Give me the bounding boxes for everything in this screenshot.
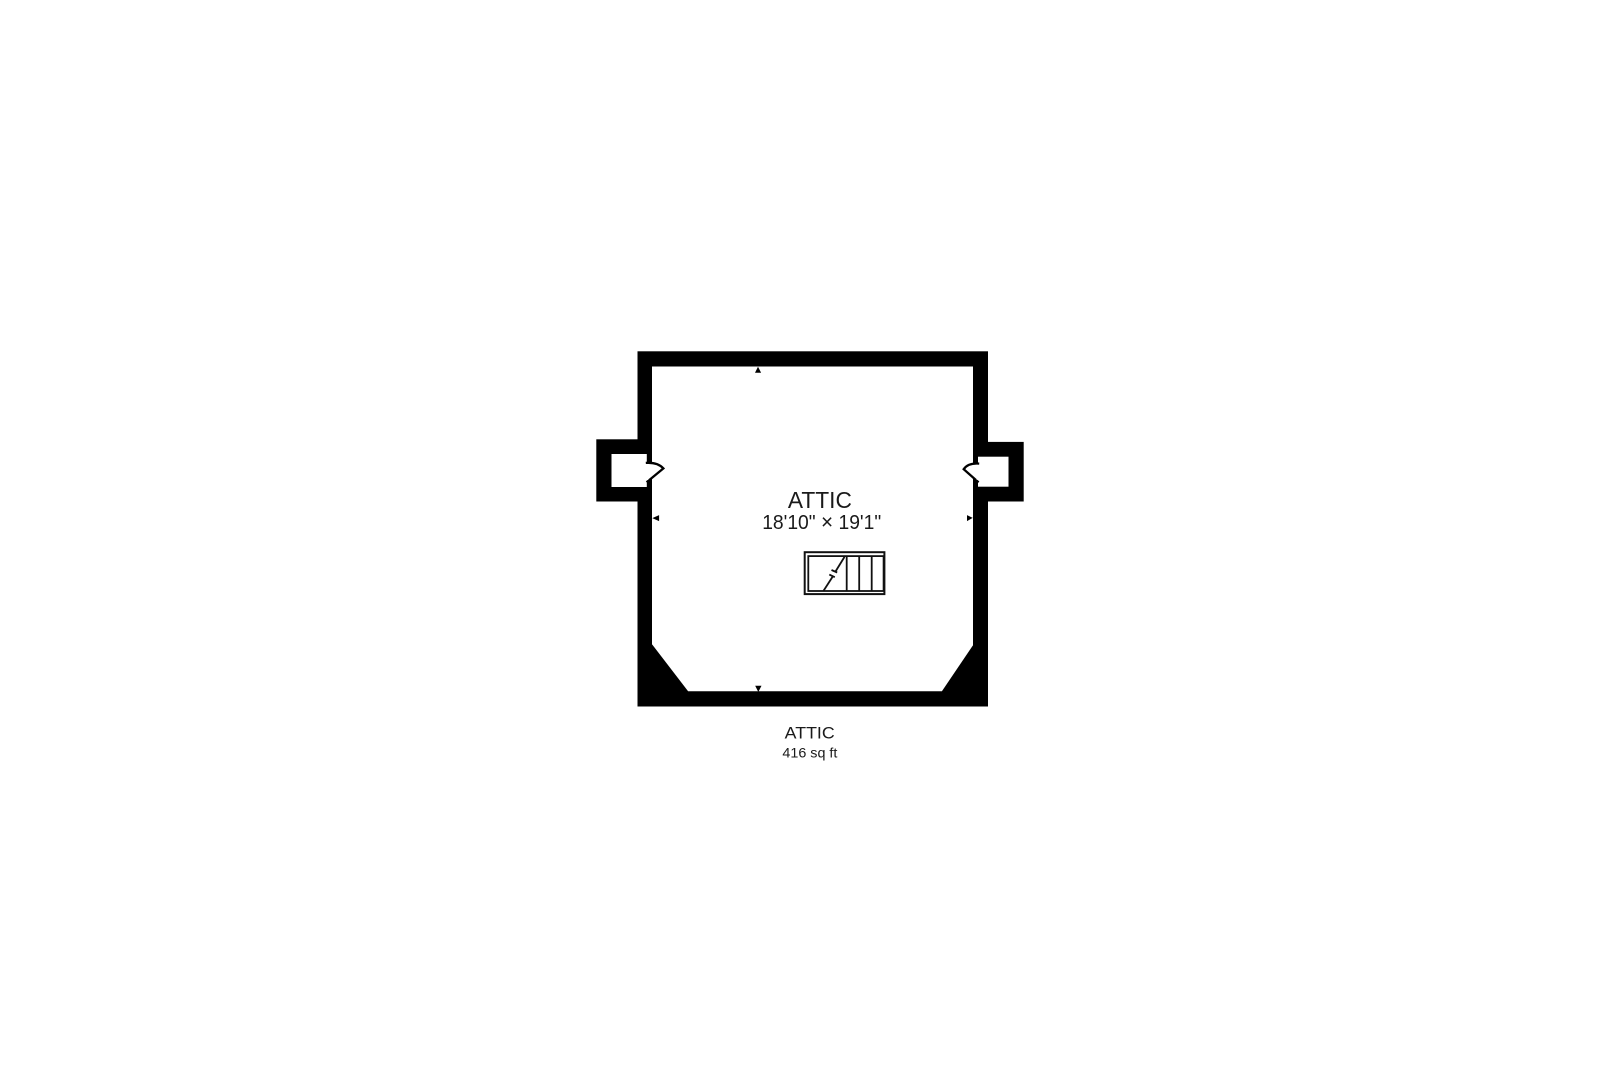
svg-text:416 sq ft: 416 sq ft [782,746,837,762]
svg-text:ATTIC: ATTIC [785,724,835,743]
svg-text:18'10" × 19'1": 18'10" × 19'1" [762,510,881,534]
svg-text:ATTIC: ATTIC [788,487,852,513]
